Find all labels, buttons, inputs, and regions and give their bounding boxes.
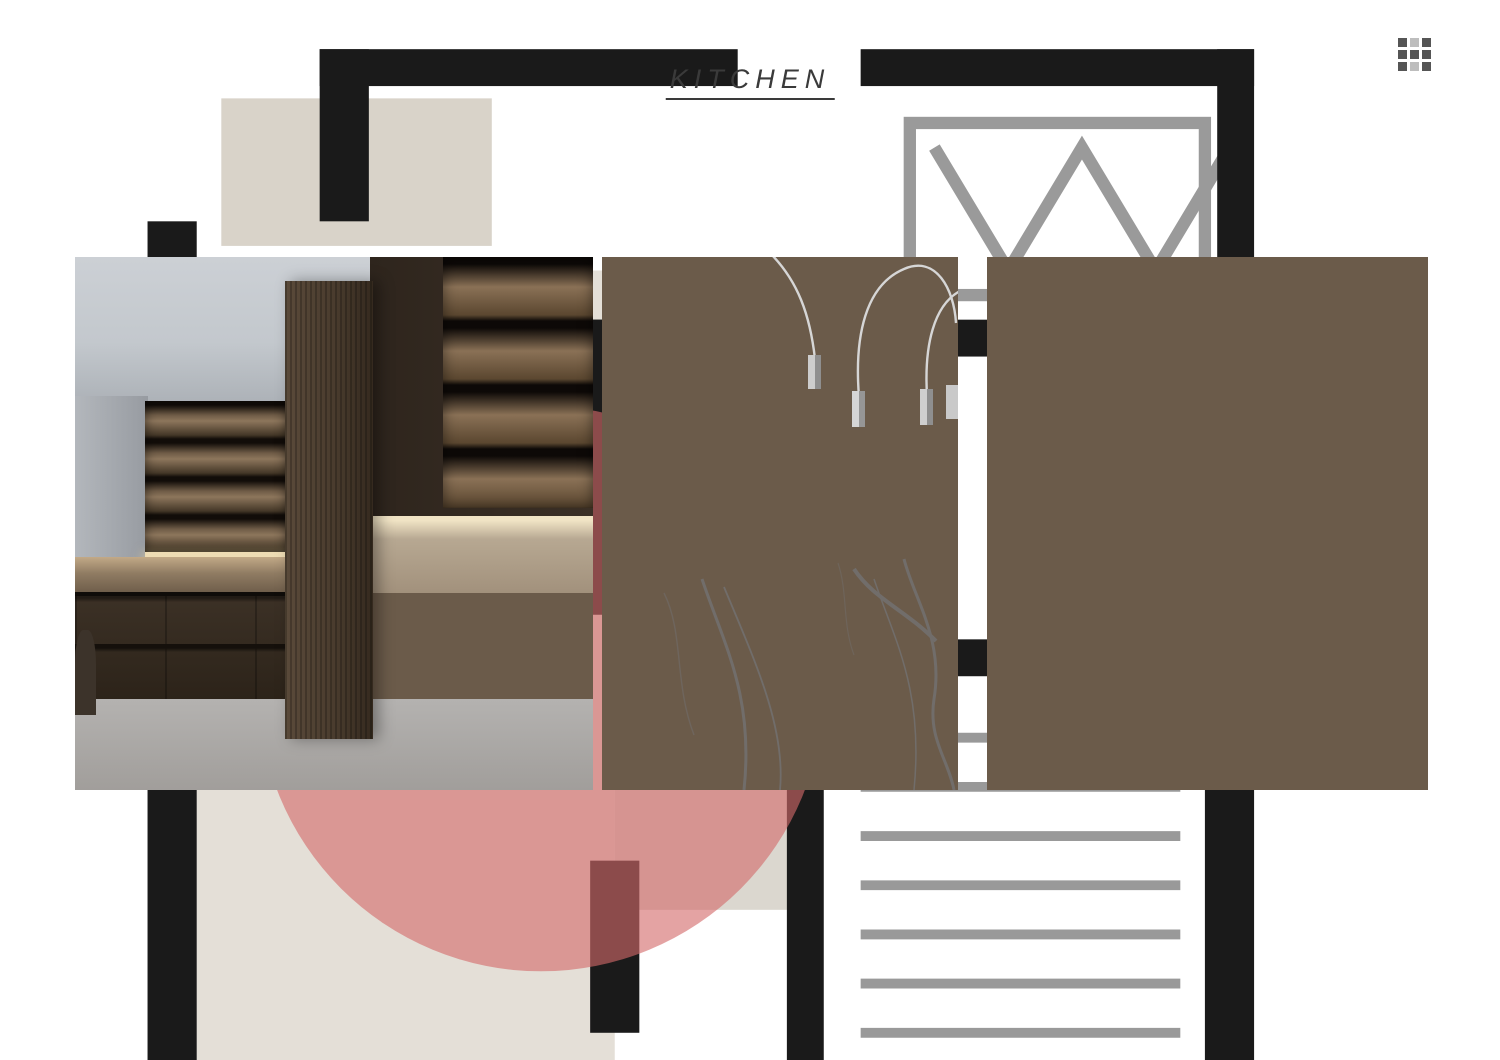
backsplash [75, 557, 287, 593]
grid-dot [1422, 62, 1431, 71]
grid-dot [1410, 62, 1419, 71]
island-drawers [370, 593, 593, 790]
photo-marble-island-kitchen [602, 257, 958, 790]
stone-backsplash [370, 516, 593, 593]
grid-dot [1422, 50, 1431, 59]
display-shelves [443, 257, 593, 508]
grid-dot [1410, 50, 1419, 59]
photo-charcoal-kitchen [987, 257, 1428, 790]
grid-dot [1398, 50, 1407, 59]
grid-dot [1422, 38, 1431, 47]
page-title: KITCHEN [666, 64, 835, 100]
stool [75, 630, 96, 715]
base-cabinets [75, 596, 287, 700]
grid-dot [1398, 62, 1407, 71]
wood-column [285, 281, 373, 739]
grid-dot [1410, 38, 1419, 47]
reference-page: KITCHEN [0, 0, 1500, 1060]
lamps-and-veins [602, 257, 958, 790]
grid-menu-icon[interactable] [1398, 38, 1431, 71]
grid-dot [1398, 38, 1407, 47]
photo-dark-wood-kitchen [75, 257, 593, 790]
glass-cabinet [145, 401, 287, 553]
